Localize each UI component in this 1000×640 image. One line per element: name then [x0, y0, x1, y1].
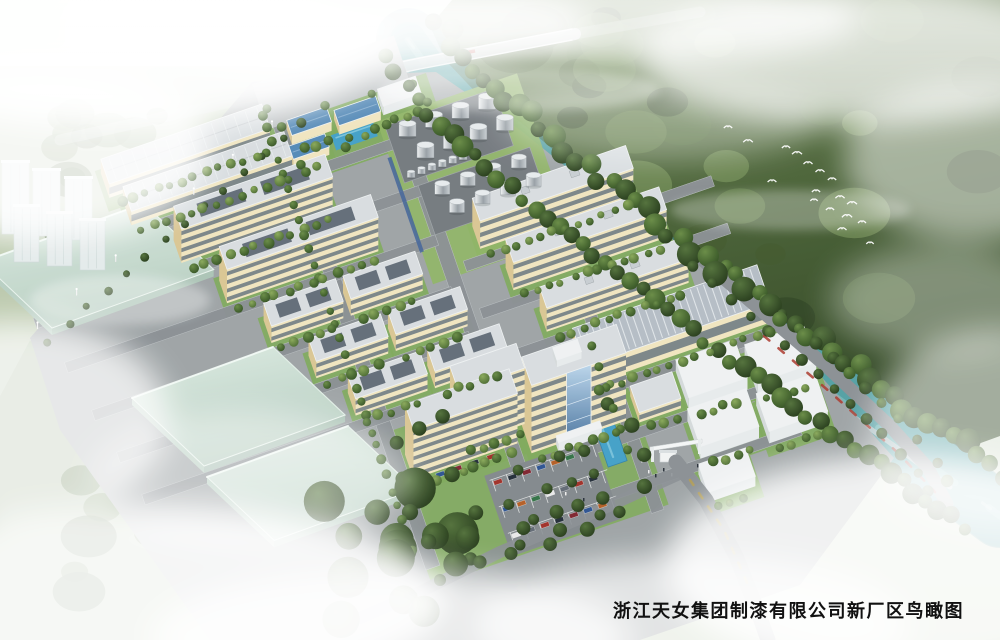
fog	[0, 0, 1000, 640]
scene-svg	[0, 0, 1000, 640]
caption-text: 浙江天女集团制漆有限公司新厂区鸟瞰图	[613, 597, 964, 623]
aerial-rendering: 浙江天女集团制漆有限公司新厂区鸟瞰图	[0, 0, 1000, 640]
